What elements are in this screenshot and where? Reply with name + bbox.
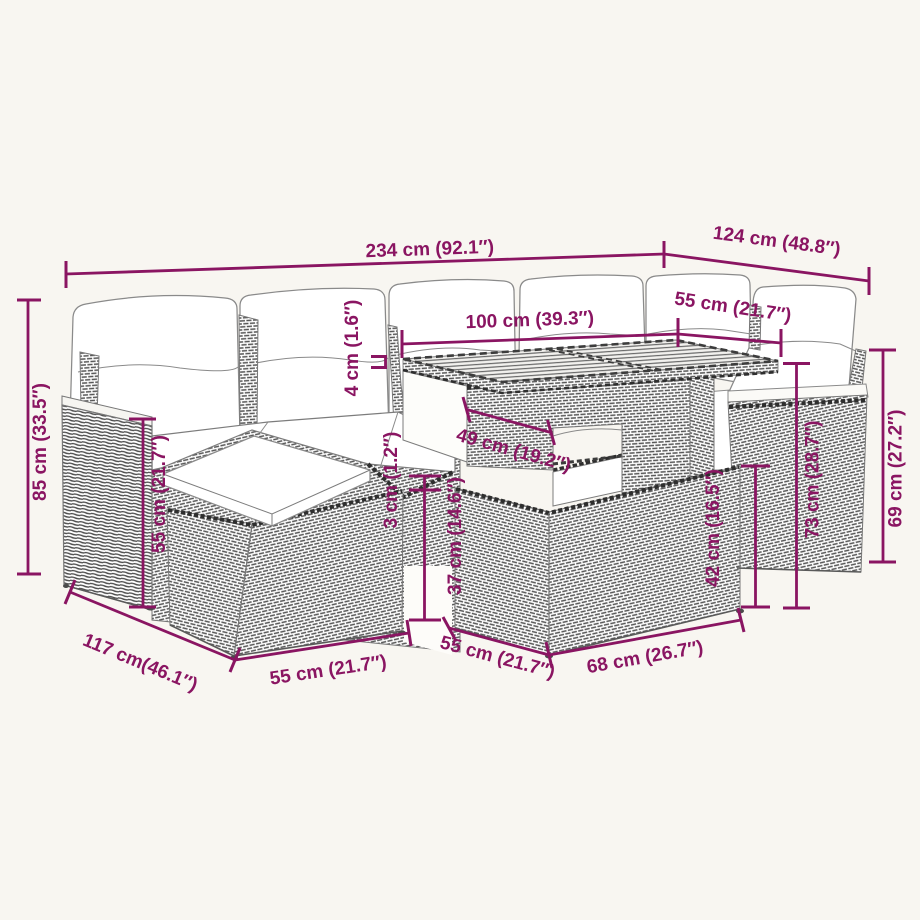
svg-text:37 cm (14.6″): 37 cm (14.6″) [445,477,466,595]
svg-text:234 cm (92.1″): 234 cm (92.1″) [365,237,494,262]
svg-text:85 cm (33.5″): 85 cm (33.5″) [30,383,51,501]
svg-text:42 cm (16.5″): 42 cm (16.5″) [703,469,724,587]
svg-text:73 cm (28.7″): 73 cm (28.7″) [803,421,824,539]
svg-text:3 cm (1.2″): 3 cm (1.2″) [381,432,402,529]
svg-text:69 cm (27.2″): 69 cm (27.2″) [886,410,907,528]
svg-text:100 cm (39.3″): 100 cm (39.3″) [465,308,594,333]
svg-text:4 cm (1.6″): 4 cm (1.6″) [342,300,363,397]
svg-text:55 cm (21.7″): 55 cm (21.7″) [149,435,170,553]
